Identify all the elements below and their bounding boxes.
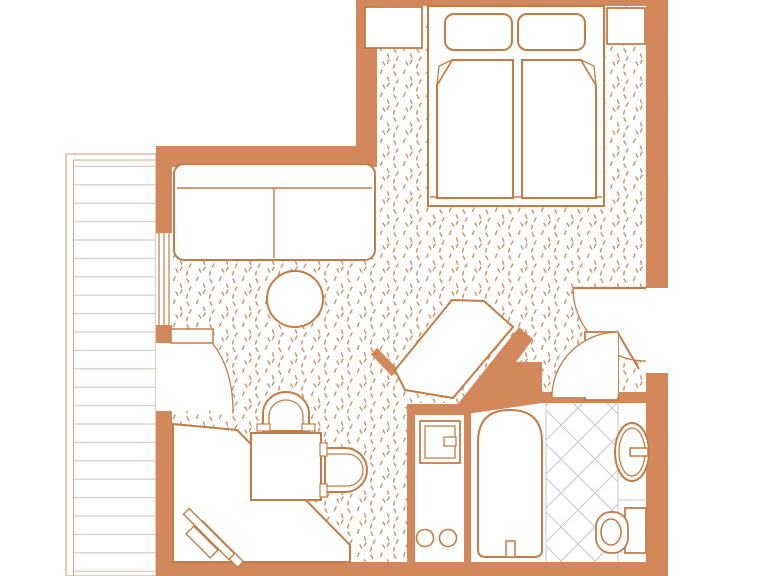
wall-right-upper — [646, 0, 668, 288]
wall-kitchenette-divider — [464, 404, 471, 567]
balcony-doorway — [156, 343, 172, 411]
balcony-door-leaf — [171, 329, 213, 343]
sink-faucet — [630, 448, 648, 456]
nightstand-left — [365, 7, 422, 48]
chair-top-cap-left — [257, 424, 270, 431]
burner-right — [440, 530, 457, 547]
bathtub-faucet — [506, 541, 515, 557]
chair-right-cap-top — [320, 443, 327, 456]
burner-left — [417, 530, 434, 547]
chair-right-cap-bottom — [320, 484, 327, 497]
coffee-table — [267, 271, 323, 327]
mattress-right — [522, 60, 596, 198]
dining-table — [251, 433, 321, 500]
floor-plan — [0, 0, 767, 576]
wall-left-mid — [156, 325, 172, 343]
pillow-left — [445, 14, 512, 50]
wall-left-upper — [156, 167, 172, 233]
wall-kitchenette-left — [407, 404, 415, 562]
wall-bottom — [156, 562, 668, 576]
nightstand-right — [607, 8, 645, 44]
wall-left-lower — [156, 411, 172, 576]
wall-right-lower — [646, 373, 668, 576]
chair-top-cap-right — [302, 424, 315, 431]
kitchenette-cabinet-handle — [444, 437, 456, 446]
floor-plan-page — [0, 0, 767, 576]
bathtub — [478, 410, 542, 557]
balcony-decking — [74, 160, 157, 576]
mattress-left — [437, 60, 513, 198]
pillow-right — [518, 14, 585, 50]
